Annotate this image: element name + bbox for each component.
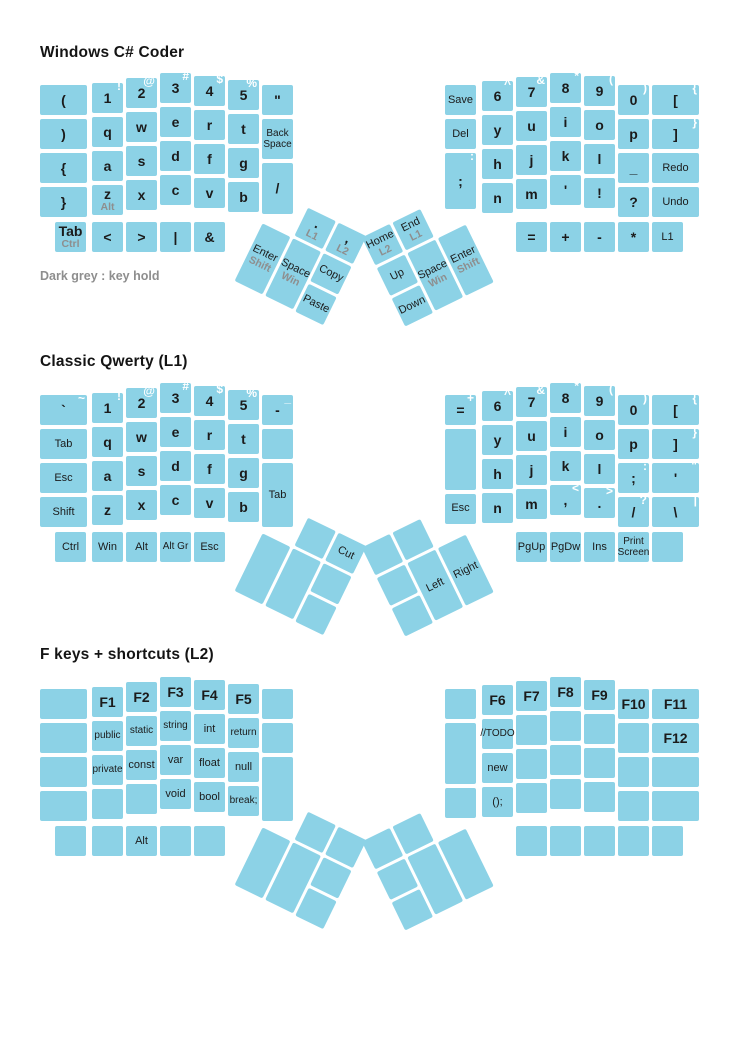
key-label: F12	[663, 731, 687, 745]
key-alt: Alt	[126, 826, 157, 856]
key-blank	[652, 791, 699, 821]
key-int: int	[194, 714, 225, 744]
key-void: void	[160, 779, 191, 809]
key-f5: F5	[228, 684, 259, 714]
key-label: ();	[492, 796, 502, 808]
key-blank	[40, 791, 87, 821]
key-label: //TODO	[480, 728, 514, 739]
key-blank	[126, 784, 157, 814]
key-f10: F10	[618, 689, 649, 719]
key-label: private	[92, 764, 122, 775]
thumb-cluster-right	[362, 797, 498, 933]
key-f4: F4	[194, 680, 225, 710]
key-label: var	[168, 754, 183, 766]
key-label: return	[230, 727, 256, 738]
key-label: Alt	[135, 835, 148, 847]
key-f6: F6	[482, 685, 513, 715]
key-blank	[92, 789, 123, 819]
key-blank	[262, 723, 293, 753]
key-f12: F12	[652, 723, 699, 753]
key-blank	[516, 783, 547, 813]
key-blank	[584, 782, 615, 812]
key-f7: F7	[516, 681, 547, 711]
key-blank	[618, 757, 649, 787]
key-label: F2	[133, 690, 149, 704]
key-f11: F11	[652, 689, 699, 719]
key-blank	[445, 689, 476, 719]
key-f3: F3	[160, 677, 191, 707]
key-blank	[40, 757, 87, 787]
key-blank	[516, 749, 547, 779]
key-f2: F2	[126, 682, 157, 712]
key-blank	[160, 826, 191, 856]
key-label: static	[130, 725, 153, 736]
keyboard-layout-sheet: Windows C# Coder(){}1!qazAlt2@wsx3#edc4$…	[0, 0, 736, 1041]
key-blank	[516, 715, 547, 745]
key-blank	[445, 723, 476, 784]
key-blank	[584, 748, 615, 778]
key-static: static	[126, 716, 157, 746]
key-break: break;	[228, 786, 259, 816]
key-return: return	[228, 718, 259, 748]
key-blank	[550, 745, 581, 775]
key-label: null	[235, 761, 252, 773]
key-blank	[652, 757, 699, 787]
key-private: private	[92, 755, 123, 785]
key-string: string	[160, 711, 191, 741]
legend-note: Dark grey : key hold	[40, 269, 160, 283]
key-f8: F8	[550, 677, 581, 707]
key-symbol: ();	[482, 787, 513, 817]
layer-title: F keys + shortcuts (L2)	[40, 646, 214, 664]
key-label: F3	[167, 685, 183, 699]
key-blank	[584, 714, 615, 744]
key-blank	[92, 826, 123, 856]
key-const: const	[126, 750, 157, 780]
key-label: F4	[201, 688, 217, 702]
key-label: break;	[230, 795, 258, 806]
key-label: float	[199, 757, 220, 769]
key-label: F10	[621, 697, 645, 711]
key-bool: bool	[194, 782, 225, 812]
key-label: new	[487, 762, 507, 774]
key-f1: F1	[92, 687, 123, 717]
key-public: public	[92, 721, 123, 751]
key-label: F5	[235, 692, 251, 706]
key-new: new	[482, 753, 513, 783]
key-label: F11	[664, 697, 687, 711]
key-blank	[618, 826, 649, 856]
key-float: float	[194, 748, 225, 778]
key-f9: F9	[584, 680, 615, 710]
key-null: null	[228, 752, 259, 782]
layer-3: F keys + shortcuts (L2)F1publicprivateF2…	[0, 0, 736, 1041]
key-blank	[516, 826, 547, 856]
key-label: public	[94, 730, 120, 741]
key-blank	[262, 689, 293, 719]
key-label: F7	[523, 689, 539, 703]
key-label: F1	[99, 695, 115, 709]
key-label: void	[165, 788, 185, 800]
key-blank	[618, 723, 649, 753]
key-blank	[194, 826, 225, 856]
key-label: string	[163, 720, 187, 731]
key-var: var	[160, 745, 191, 775]
key-label: const	[128, 759, 154, 771]
key-label: F8	[557, 685, 573, 699]
thumb-cluster-left	[233, 797, 369, 933]
key-label: bool	[199, 791, 220, 803]
key-label: F9	[591, 688, 607, 702]
key-blank	[40, 723, 87, 753]
key-blank	[584, 826, 615, 856]
key-blank	[40, 689, 87, 719]
key-blank	[550, 711, 581, 741]
key-todo: //TODO	[482, 719, 513, 749]
key-blank	[550, 826, 581, 856]
key-blank	[550, 779, 581, 809]
key-blank	[618, 791, 649, 821]
key-blank	[652, 826, 683, 856]
key-label: F6	[489, 693, 505, 707]
key-blank	[55, 826, 86, 856]
key-label: int	[204, 723, 216, 735]
